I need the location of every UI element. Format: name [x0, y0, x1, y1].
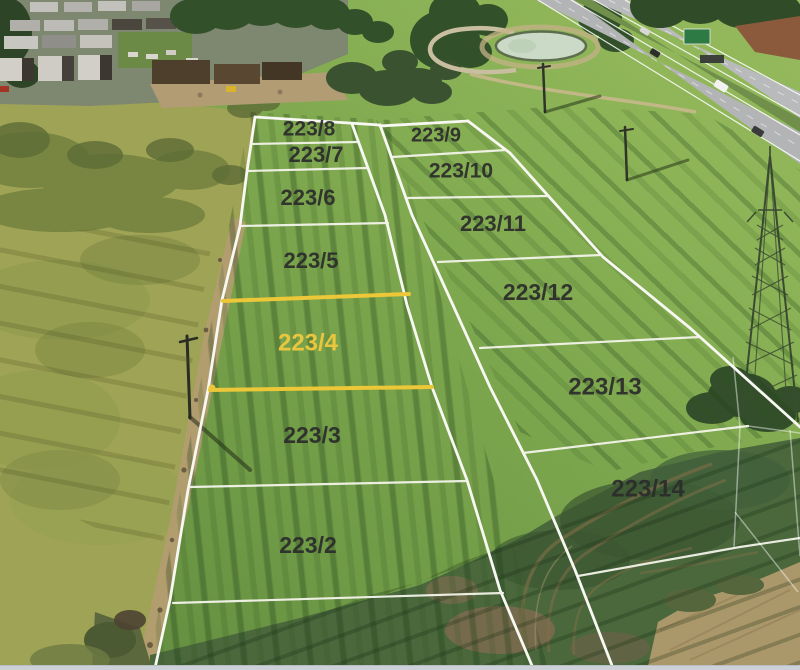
highlight-boundary-line — [223, 294, 409, 301]
parcel-divider-line — [408, 196, 549, 198]
parcel-divider-line — [578, 538, 800, 576]
parcel-label: 223/3 — [283, 422, 341, 448]
parcel-label: 223/12 — [503, 279, 573, 305]
aerial-parcel-photo: 223/8223/7223/6223/5223/4223/3223/2223/9… — [0, 0, 800, 670]
faint-boundary-line — [748, 426, 800, 433]
faint-boundary-line — [733, 357, 740, 547]
footer-bar — [0, 665, 800, 670]
highlight-line-marker — [209, 385, 216, 392]
parcel-label: 223/14 — [611, 475, 685, 502]
parcel-label: 223/2 — [279, 532, 337, 558]
boundary-line — [352, 124, 533, 668]
parcel-label: 223/4 — [278, 329, 339, 356]
parcel-overlay: 223/8223/7223/6223/5223/4223/3223/2223/9… — [0, 0, 800, 670]
parcel-divider-line — [438, 255, 601, 262]
parcel-divider-line — [392, 150, 506, 157]
parcel-label: 223/6 — [280, 185, 335, 210]
parcel-label: 223/5 — [283, 248, 338, 273]
parcel-divider-line — [173, 593, 503, 603]
parcel-divider-line — [523, 426, 748, 453]
boundary-line — [155, 117, 255, 668]
highlight-boundary-line — [210, 387, 432, 390]
parcel-label: 223/8 — [283, 118, 336, 141]
parcel-divider-line — [247, 168, 367, 171]
parcel-label: 223/13 — [568, 373, 641, 400]
faint-boundary-line — [790, 430, 800, 556]
parcel-label: 223/9 — [411, 124, 461, 146]
parcel-label: 223/7 — [288, 142, 343, 167]
parcel-divider-line — [240, 223, 388, 226]
parcel-label: 223/10 — [429, 160, 493, 183]
parcel-label: 223/11 — [460, 211, 526, 236]
parcel-divider-line — [190, 481, 467, 487]
parcel-divider-line — [480, 337, 700, 348]
faint-boundary-line — [735, 512, 798, 592]
